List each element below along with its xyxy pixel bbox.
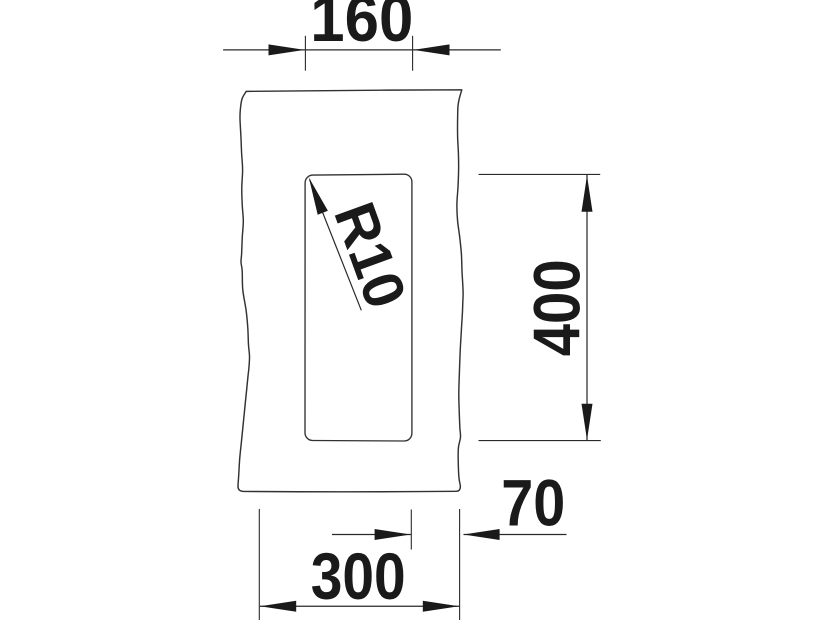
svg-text:300: 300 <box>311 540 406 613</box>
svg-text:70: 70 <box>501 467 565 540</box>
svg-text:400: 400 <box>521 259 594 356</box>
svg-text:160: 160 <box>310 0 413 55</box>
